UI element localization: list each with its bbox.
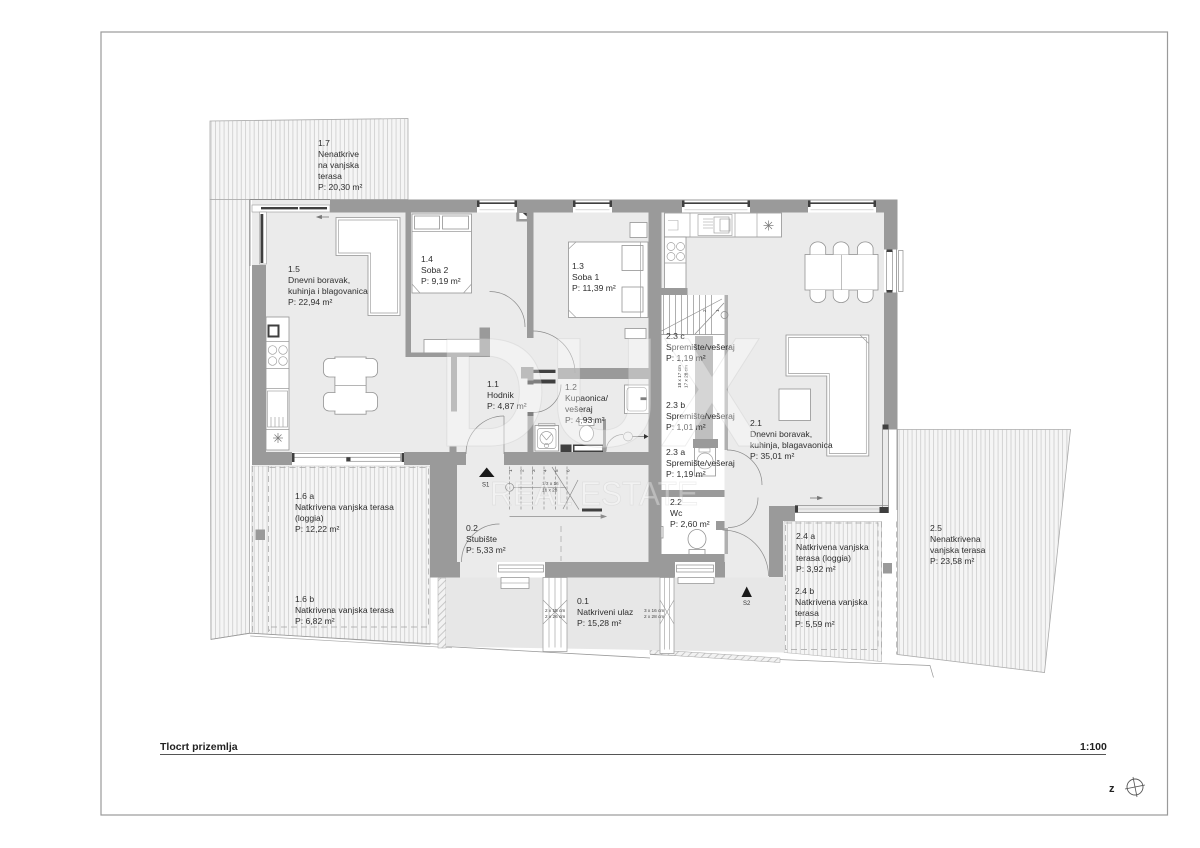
svg-text:vanjska terasa: vanjska terasa bbox=[930, 545, 986, 555]
svg-text:P: 11,39 m²: P: 11,39 m² bbox=[572, 283, 616, 293]
svg-text:1.6 b: 1.6 b bbox=[295, 594, 314, 604]
svg-text:S1: S1 bbox=[482, 483, 490, 489]
svg-text:P: 22,94 m²: P: 22,94 m² bbox=[288, 297, 333, 307]
svg-text:Natkrivena vanjska terasa: Natkrivena vanjska terasa bbox=[295, 502, 394, 512]
svg-text:2 x 28 cm: 2 x 28 cm bbox=[644, 614, 664, 619]
svg-text:2 x 26 cm: 2 x 26 cm bbox=[545, 614, 565, 619]
svg-text:Dnevni boravak,: Dnevni boravak, bbox=[288, 275, 350, 285]
svg-text:P: 2,60 m²: P: 2,60 m² bbox=[670, 519, 710, 529]
svg-text:Nenatkrive: Nenatkrive bbox=[318, 149, 359, 159]
svg-text:Stubište: Stubište bbox=[466, 534, 497, 544]
svg-text:terasa (loggia): terasa (loggia) bbox=[796, 553, 851, 563]
svg-text:1.5: 1.5 bbox=[288, 264, 300, 274]
svg-text:Nenatkrivena: Nenatkrivena bbox=[930, 534, 981, 544]
svg-text:DUX: DUX bbox=[437, 306, 764, 480]
svg-text:P: 6,82 m²: P: 6,82 m² bbox=[295, 616, 335, 626]
svg-text:P: 12,22 m²: P: 12,22 m² bbox=[295, 524, 340, 534]
svg-text:terasa: terasa bbox=[795, 608, 819, 618]
svg-text:P: 3,92 m²: P: 3,92 m² bbox=[796, 564, 836, 574]
svg-text:P: 23,58 m²: P: 23,58 m² bbox=[930, 556, 975, 566]
svg-text:S2: S2 bbox=[743, 601, 751, 607]
svg-text:1.6 a: 1.6 a bbox=[295, 491, 314, 501]
svg-text:Natkrivena vanjska: Natkrivena vanjska bbox=[795, 597, 868, 607]
svg-text:Tlocrt prizemlja: Tlocrt prizemlja bbox=[160, 741, 238, 753]
svg-text:Natkrivena vanjska: Natkrivena vanjska bbox=[796, 542, 869, 552]
svg-text:P: 5,59 m²: P: 5,59 m² bbox=[795, 619, 835, 629]
svg-text:P: 15,28 m²: P: 15,28 m² bbox=[577, 618, 622, 628]
svg-text:P: 9,19 m²: P: 9,19 m² bbox=[421, 276, 461, 286]
svg-text:Soba 2: Soba 2 bbox=[421, 265, 448, 275]
svg-text:terasa: terasa bbox=[318, 171, 342, 181]
svg-text:0.2: 0.2 bbox=[466, 523, 478, 533]
svg-text:REAL ESTATE: REAL ESTATE bbox=[490, 475, 698, 512]
svg-text:1.7: 1.7 bbox=[318, 138, 330, 148]
svg-text:3 x 16 cm: 3 x 16 cm bbox=[644, 608, 664, 613]
svg-text:2 x 15 cm: 2 x 15 cm bbox=[545, 608, 565, 613]
svg-text:1:100: 1:100 bbox=[1080, 741, 1107, 753]
svg-text:1.3: 1.3 bbox=[572, 261, 584, 271]
svg-text:na vanjska: na vanjska bbox=[318, 160, 359, 170]
svg-text:0.1: 0.1 bbox=[577, 596, 589, 606]
svg-text:Soba 1: Soba 1 bbox=[572, 272, 599, 282]
svg-text:2.5: 2.5 bbox=[930, 523, 942, 533]
svg-text:P: 5,33 m²: P: 5,33 m² bbox=[466, 545, 506, 555]
svg-text:2.4 b: 2.4 b bbox=[795, 586, 814, 596]
svg-text:Natkriveni ulaz: Natkriveni ulaz bbox=[577, 607, 633, 617]
svg-text:P: 20,30 m²: P: 20,30 m² bbox=[318, 182, 363, 192]
svg-text:1.4: 1.4 bbox=[421, 254, 433, 264]
svg-text:2.4 a: 2.4 a bbox=[796, 531, 815, 541]
svg-text:kuhinja i blagovanica: kuhinja i blagovanica bbox=[288, 286, 368, 296]
svg-text:z: z bbox=[1109, 783, 1115, 795]
svg-text:Natkrivena vanjska terasa: Natkrivena vanjska terasa bbox=[295, 605, 394, 615]
svg-text:(loggia): (loggia) bbox=[295, 513, 324, 523]
